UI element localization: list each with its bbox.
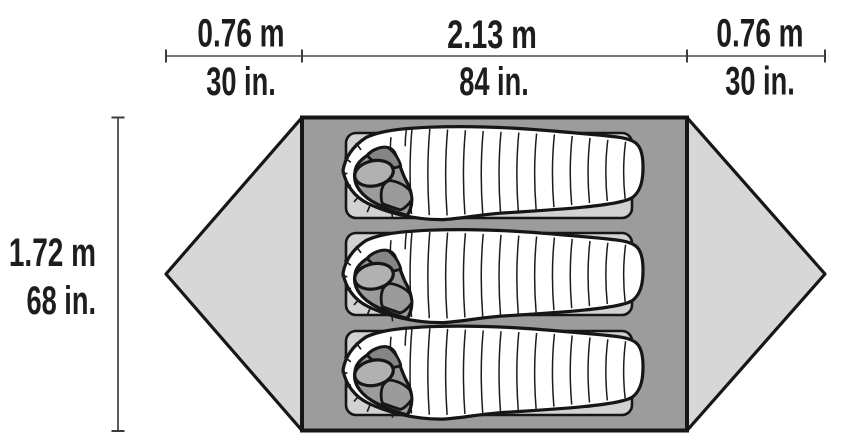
- svg-text:68 in.: 68 in.: [26, 279, 96, 323]
- svg-text:2.13 m: 2.13 m: [447, 12, 537, 57]
- svg-text:30 in.: 30 in.: [725, 59, 795, 103]
- svg-text:0.76 m: 0.76 m: [716, 12, 803, 56]
- svg-text:1.72 m: 1.72 m: [9, 231, 96, 275]
- svg-text:84 in.: 84 in.: [459, 60, 529, 104]
- svg-text:30 in.: 30 in.: [206, 60, 276, 104]
- svg-text:0.76 m: 0.76 m: [197, 12, 284, 56]
